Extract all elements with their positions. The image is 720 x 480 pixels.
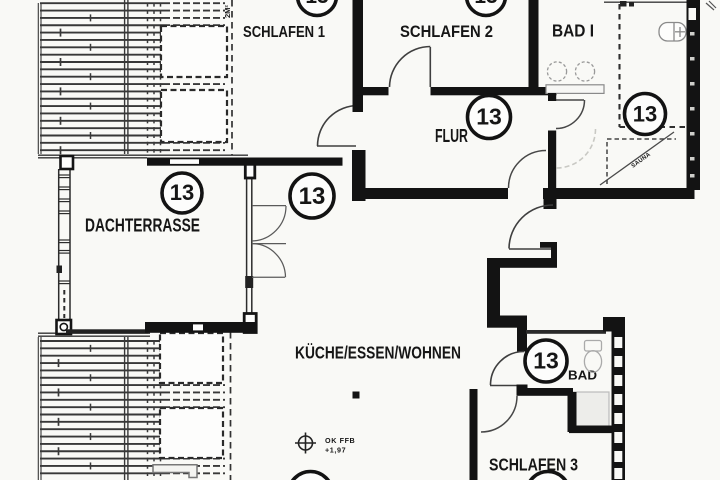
svg-text:DACHTERRASSE: DACHTERRASSE bbox=[85, 215, 200, 236]
svg-text:FLUR: FLUR bbox=[435, 126, 468, 146]
svg-text:SCHLAFEN 1: SCHLAFEN 1 bbox=[243, 24, 325, 41]
svg-text:SCHLAFEN 3: SCHLAFEN 3 bbox=[489, 455, 578, 475]
svg-text:13: 13 bbox=[533, 348, 559, 374]
svg-text:13: 13 bbox=[299, 183, 326, 210]
svg-text:BAD I: BAD I bbox=[552, 21, 594, 41]
svg-text:13: 13 bbox=[474, 0, 497, 8]
svg-text:13: 13 bbox=[633, 101, 657, 126]
svg-text:2M²: 2M² bbox=[223, 5, 232, 18]
svg-text:OK FFB: OK FFB bbox=[325, 436, 355, 445]
svg-text:BAD: BAD bbox=[568, 368, 597, 383]
svg-text:13: 13 bbox=[170, 180, 194, 205]
svg-text:+1,97: +1,97 bbox=[325, 446, 346, 455]
svg-text:13: 13 bbox=[476, 104, 502, 130]
svg-text:SCHLAFEN 2: SCHLAFEN 2 bbox=[400, 22, 493, 41]
svg-text:KÜCHE/ESSEN/WOHNEN: KÜCHE/ESSEN/WOHNEN bbox=[295, 343, 461, 363]
svg-text:13: 13 bbox=[305, 0, 328, 8]
